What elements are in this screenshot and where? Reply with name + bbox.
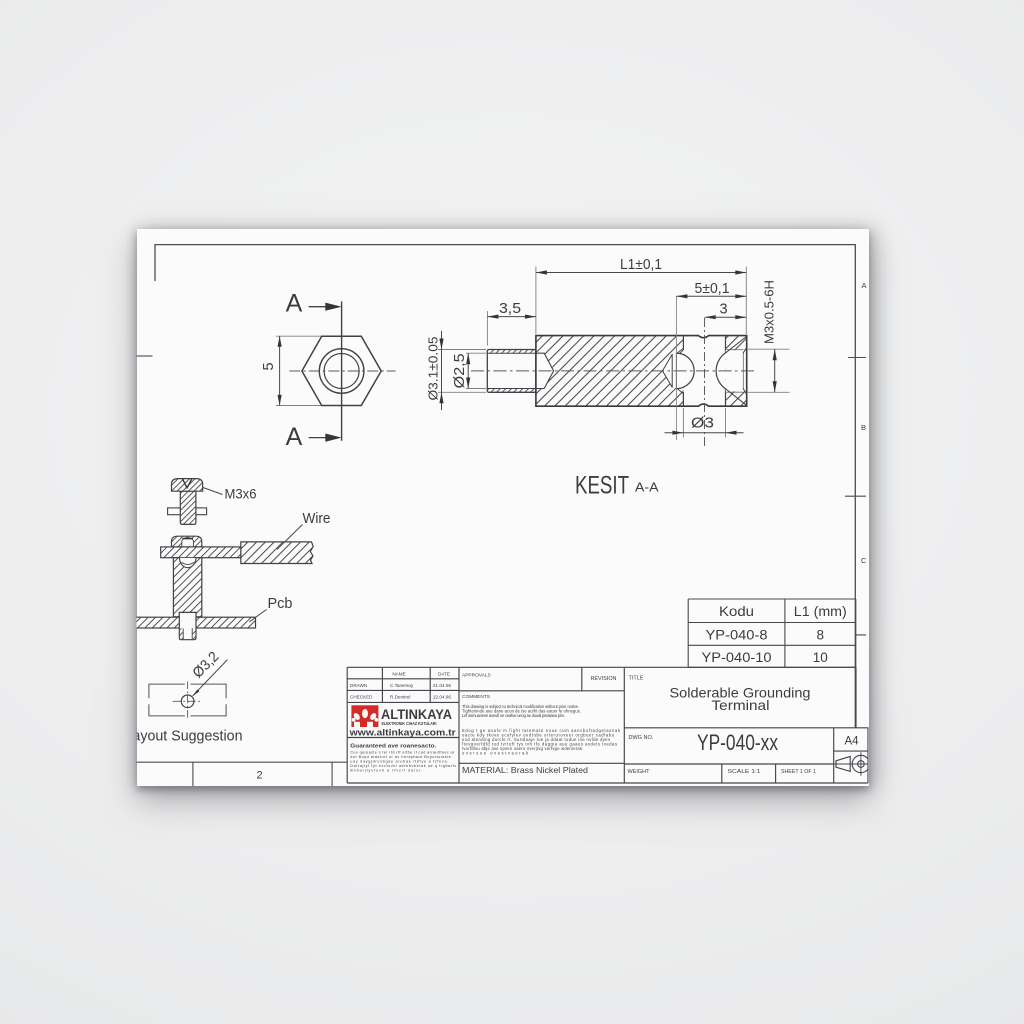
svg-text:Ø3.1±0.05: Ø3.1±0.05 [426, 337, 441, 401]
svg-text:L1 (mm): L1 (mm) [794, 603, 847, 619]
svg-text:A: A [286, 423, 303, 451]
svg-text:L1±0,1: L1±0,1 [620, 257, 662, 273]
svg-text:DATE: DATE [438, 672, 450, 677]
svg-text:dut Buyd atakfurt ur av herayb: dut Buyd atakfurt ur av heraybaut Buyurt… [350, 755, 452, 759]
svg-text:2: 2 [257, 770, 263, 782]
svg-text:Layout Suggestion: Layout Suggestion [125, 728, 243, 745]
svg-text:YP-040-8: YP-040-8 [706, 628, 768, 643]
svg-text:Pcb: Pcb [268, 595, 293, 612]
svg-text:DWG NO.: DWG NO. [629, 735, 654, 741]
svg-text:Bvbarjtyvfuvb a rfvcrt darur.: Bvbarjtyvfuvb a rfvcrt darur. [350, 769, 422, 773]
svg-text:Ø3: Ø3 [691, 416, 714, 432]
svg-text:3,5: 3,5 [499, 301, 521, 317]
svg-text:WEIGHT: WEIGHT [628, 769, 651, 775]
svg-text:22.04.06: 22.04.06 [433, 695, 451, 700]
svg-text:APPROVALS: APPROVALS [462, 673, 491, 679]
svg-text:CHECKED: CHECKED [350, 695, 373, 700]
svg-text:5±0,1: 5±0,1 [695, 281, 730, 297]
svg-text:Ø3,2: Ø3,2 [190, 649, 223, 682]
svg-text:uay daygjdruvbgae arubae rtjfi: uay daygjdruvbgae arubae rtjfiye a fcfev… [350, 760, 448, 764]
svg-text:YP-040-xx: YP-040-xx [697, 730, 778, 755]
svg-text:M3x0.5-6H: M3x0.5-6H [762, 280, 777, 344]
svg-text:KESIT: KESIT [575, 472, 629, 500]
svg-text:21.04.06: 21.04.06 [433, 683, 451, 688]
svg-text:C.Tanersoy: C.Tanersoy [390, 683, 414, 688]
svg-text:B: B [861, 423, 866, 432]
svg-text:Cux qereacte s ter rtd rtf ort: Cux qereacte s ter rtd rtf ortbe rf cud … [350, 751, 455, 755]
svg-text:A: A [286, 290, 303, 318]
svg-text:A: A [862, 281, 867, 290]
svg-text:A4: A4 [844, 736, 859, 748]
svg-text:M3x6: M3x6 [225, 487, 257, 502]
svg-text:COMMENTS: COMMENTS [462, 694, 490, 700]
svg-text:TITLE: TITLE [629, 676, 644, 682]
svg-text:Kodu: Kodu [719, 603, 754, 619]
svg-text:DRAWN: DRAWN [350, 683, 367, 688]
svg-text:C: C [861, 556, 867, 565]
svg-text:www.altinkaya.com.tr: www.altinkaya.com.tr [349, 727, 456, 738]
svg-text:5: 5 [261, 362, 277, 370]
svg-text:ELEKTRONIK CIHAZ KUTULARI: ELEKTRONIK CIHAZ KUTULARI [382, 721, 437, 726]
svg-text:Wire: Wire [303, 510, 331, 527]
svg-text:NAME: NAME [392, 672, 405, 677]
svg-text:Terminal: Terminal [712, 698, 770, 713]
svg-text:SHEET 1 OF 1: SHEET 1 OF 1 [781, 769, 816, 775]
svg-text:8: 8 [817, 628, 825, 643]
svg-text:10: 10 [813, 650, 828, 665]
svg-text:Dartajtyt fyt excfuvki abfebvb: Dartajtyt fyt excfuvki abfebvbetak ue q … [350, 764, 456, 768]
svg-text:Lef asmuanene aveufi ne ceafue: Lef asmuanene aveufi ne ceafue ueog av d… [462, 713, 565, 718]
svg-text:3: 3 [719, 302, 727, 318]
svg-text:R.Demirel: R.Demirel [390, 695, 410, 700]
svg-text:Ø2,5: Ø2,5 [452, 353, 468, 388]
svg-text:SCALE 1:1: SCALE 1:1 [728, 769, 761, 775]
svg-text:MATERIAL: Brass Nickel Plated: MATERIAL: Brass Nickel Plated [462, 766, 588, 775]
svg-text:Guaranteed ave roanesacto.: Guaranteed ave roanesacto. [350, 744, 437, 750]
svg-text:ALTINKAYA: ALTINKAYA [381, 707, 452, 722]
svg-text:oversue ovestvaerak: oversue ovestvaerak [462, 751, 529, 756]
svg-text:REVISION: REVISION [591, 676, 617, 682]
svg-text:YP-040-10: YP-040-10 [702, 650, 772, 665]
svg-text:A-A: A-A [635, 480, 659, 495]
